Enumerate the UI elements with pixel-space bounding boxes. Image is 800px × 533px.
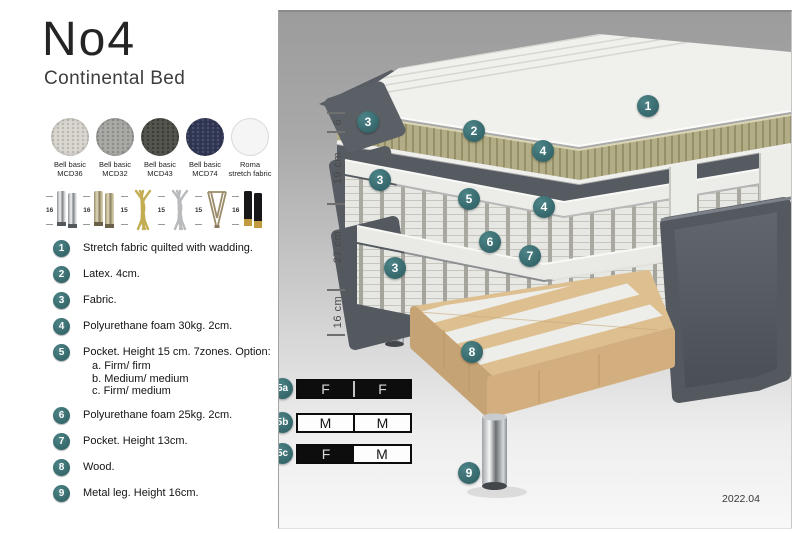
gold-twisted-leg-icon	[129, 188, 157, 232]
chrome-cylinder-leg-icon	[54, 188, 82, 232]
brass-cylinder-leg-icon	[91, 188, 119, 232]
fabric-swatch-icon	[231, 118, 269, 156]
fabric-code: MCD74	[192, 169, 217, 178]
feature-number-badge: 1	[53, 240, 70, 257]
black-brass-tip-leg-icon	[240, 188, 266, 232]
feature-text: Metal leg. Height 16cm.	[83, 485, 199, 501]
dimension-label: 27 cm	[332, 225, 344, 269]
leg-height: 15	[120, 197, 127, 224]
feature-item: 6 Polyurethane foam 25kg. 2cm.	[53, 407, 275, 424]
leg-height: 16	[46, 197, 53, 224]
dimension-tick	[327, 203, 345, 205]
leg-option: 16	[232, 188, 266, 232]
fabric-swatch: Bell basicMCD36	[49, 118, 91, 179]
leg-height: 15	[195, 197, 202, 224]
fabric-swatch: Bell basicMCD74	[184, 118, 226, 179]
fabric-swatch-icon	[51, 118, 89, 156]
feature-option: a. Firm/ firm	[92, 360, 271, 373]
callout-badge: 9	[458, 462, 480, 484]
product-name: No4	[42, 16, 278, 64]
feature-item: 5 Pocket. Height 15 cm. 7zones. Option: …	[53, 344, 275, 398]
firmness-cell: F	[298, 381, 353, 397]
fabric-code: MCD32	[102, 169, 127, 178]
leg-option: 15	[158, 188, 194, 232]
feature-item: 4 Polyurethane foam 30kg. 2cm.	[53, 318, 275, 335]
dimension-label: 19 cm	[332, 146, 344, 190]
feature-text: Fabric.	[83, 292, 117, 308]
feature-item: 7 Pocket. Height 13cm.	[53, 433, 275, 450]
fabric-name: Bell basic	[144, 160, 176, 169]
feature-number-badge: 3	[53, 292, 70, 309]
feature-text: Polyurethane foam 25kg. 2cm.	[83, 407, 232, 423]
feature-item: 3 Fabric.	[53, 292, 275, 309]
firmness-bar: M M	[296, 413, 412, 433]
feature-text: Latex. 4cm.	[83, 266, 140, 282]
fabric-swatch-icon	[141, 118, 179, 156]
feature-text: Pocket. Height 15 cm. 7zones. Option:	[83, 346, 271, 358]
leg-option: 15	[120, 188, 156, 232]
fabric-swatch: Bell basicMCD43	[139, 118, 181, 179]
fabric-code: MCD36	[57, 169, 82, 178]
feature-text: Pocket. Height 13cm.	[83, 433, 188, 449]
fabric-code: stretch fabric	[229, 169, 272, 178]
bottom-right-shell	[667, 204, 784, 396]
front-metal-leg	[482, 416, 507, 486]
callout-badge: 4	[533, 196, 555, 218]
feature-number-badge: 8	[53, 459, 70, 476]
fabric-swatch-icon	[186, 118, 224, 156]
firmness-cell: F	[353, 381, 410, 397]
leg-option: 15	[195, 188, 231, 232]
callout-badge: 6	[479, 231, 501, 253]
callout-badge: 3	[357, 111, 379, 133]
silver-twisted-leg-icon	[166, 188, 194, 232]
feature-item: 1 Stretch fabric quilted with wadding.	[53, 240, 275, 257]
callout-badge: 7	[519, 245, 541, 267]
firmness-bar: F M	[296, 444, 412, 464]
fabric-swatch: Bell basicMCD32	[94, 118, 136, 179]
feature-number-badge: 6	[53, 407, 70, 424]
version-stamp: 2022.04	[722, 493, 760, 505]
dimension-label: 6	[332, 100, 344, 144]
fabric-name: Bell basic	[99, 160, 131, 169]
feature-option: c. Firm/ medium	[92, 385, 271, 398]
dimension-tick	[327, 334, 345, 336]
fabric-name: Roma	[240, 160, 260, 169]
callout-badge: 1	[637, 95, 659, 117]
callout-badge: 2	[463, 120, 485, 142]
feature-options: a. Firm/ firm b. Medium/ medium c. Firm/…	[83, 360, 271, 398]
firmness-cell: M	[354, 446, 410, 462]
leg-height: 16	[83, 197, 90, 224]
callout-badge: 8	[461, 341, 483, 363]
firmness-cell: F	[298, 446, 354, 462]
callout-badge: 3	[384, 257, 406, 279]
fabric-swatch-icon	[96, 118, 134, 156]
firmness-cell: M	[353, 415, 410, 431]
leg-options: 16 16 15 15	[46, 188, 266, 232]
feature-text: Wood.	[83, 459, 115, 475]
feature-number-badge: 7	[53, 433, 70, 450]
leg-option: 16	[46, 188, 82, 232]
firmness-bar: F F	[296, 379, 412, 399]
fabric-code: MCD43	[147, 169, 172, 178]
leg-height: 16	[232, 197, 239, 224]
feature-list: 1 Stretch fabric quilted with wadding. 2…	[53, 240, 275, 511]
feature-text: Stretch fabric quilted with wadding.	[83, 240, 253, 256]
callout-badge: 4	[532, 140, 554, 162]
firmness-cell: M	[298, 415, 353, 431]
feature-item: 2 Latex. 4cm.	[53, 266, 275, 283]
feature-item: 9 Metal leg. Height 16cm.	[53, 485, 275, 502]
feature-item: 8 Wood.	[53, 459, 275, 476]
bed-cutaway-panel: 6 19 cm 27 cm 16 cm 1 2 3 4 3 5 4 6 7 3 …	[278, 10, 792, 529]
feature-text: Polyurethane foam 30kg. 2cm.	[83, 318, 232, 334]
dimension-label: 16 cm	[332, 290, 344, 334]
leg-height: 15	[158, 197, 165, 224]
product-type: Continental Bed	[44, 68, 278, 90]
fabric-name: Bell basic	[189, 160, 221, 169]
callout-badge: 3	[369, 169, 391, 191]
feature-number-badge: 9	[53, 485, 70, 502]
feature-number-badge: 5	[53, 344, 70, 361]
fabric-swatch: Romastretch fabric	[229, 118, 271, 179]
feature-option: b. Medium/ medium	[92, 373, 271, 386]
feature-number-badge: 2	[53, 266, 70, 283]
info-column: No4 Continental Bed Bell basicMCD36 Bell…	[0, 0, 278, 533]
feature-number-badge: 4	[53, 318, 70, 335]
hairpin-leg-icon	[203, 188, 231, 232]
fabric-name: Bell basic	[54, 160, 86, 169]
callout-badge: 5	[458, 188, 480, 210]
leg-option: 16	[83, 188, 119, 232]
fabric-swatches: Bell basicMCD36 Bell basicMCD32 Bell bas…	[49, 118, 271, 179]
